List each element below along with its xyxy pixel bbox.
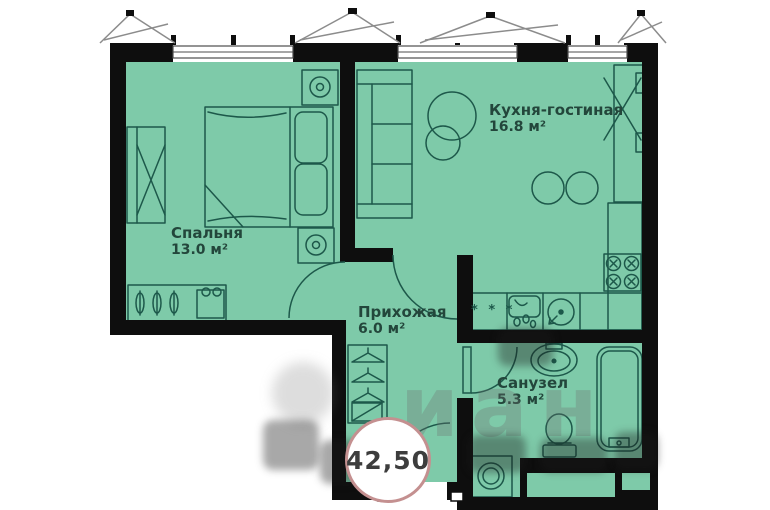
wall-top-3	[517, 43, 568, 62]
wall-right	[642, 43, 658, 497]
bedroom-floor	[126, 62, 340, 320]
gable-icon	[295, 8, 400, 43]
wall-kitchen-bottom	[457, 330, 658, 343]
shaft-niche-1	[527, 473, 615, 497]
wall-kitchen-hall-stub	[355, 248, 393, 262]
bathroom-floor	[473, 343, 642, 458]
wall-bedroom-bottom	[110, 320, 345, 335]
shaft-niche-2	[622, 473, 650, 490]
total-area-value: 42,50	[346, 446, 430, 475]
total-area-badge: 42,50	[345, 417, 431, 503]
fridge-marker: * * *	[471, 303, 515, 318]
gable-icon	[100, 10, 175, 43]
wall-left	[110, 43, 126, 335]
floorplan-image: Кухня-гостиная 16.8 м² Спальня 13.0 м² П…	[0, 0, 770, 510]
wall-nook-bottom	[457, 497, 520, 510]
wall-bedroom-kitchen	[340, 62, 355, 262]
wall-hall-kitchen-vertical	[457, 255, 473, 343]
gable-icon	[618, 10, 666, 43]
wall-top-2	[293, 43, 398, 62]
wall-bathroom-bottom	[520, 458, 658, 470]
gable-icon	[420, 12, 565, 43]
facade-gables	[100, 8, 666, 43]
wall-hall-left	[332, 320, 346, 500]
